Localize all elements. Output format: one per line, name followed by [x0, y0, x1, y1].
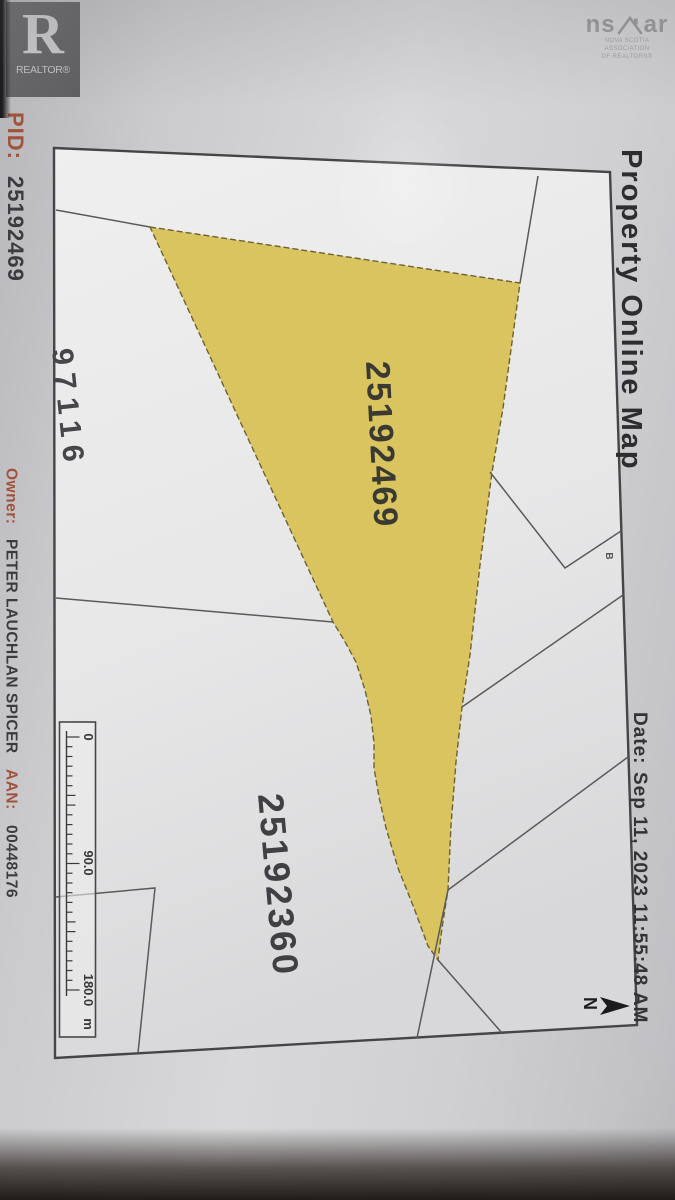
aan-label: AAN: [3, 769, 19, 810]
page-title-block: Property Online Map [616, 149, 645, 471]
pid-label: PID: [4, 112, 26, 160]
nsar-logo: ns ar NOVA SCOTIA ASSOCIATION OF REALTOR… [583, 12, 671, 61]
pid-margin-block: PID: 25192469 [4, 112, 26, 282]
realtor-logo: R REALTOR® [6, 2, 80, 97]
realtor-r-icon: R [22, 2, 64, 66]
date-value: Sep 11, 2023 11:55:48 AM [630, 772, 649, 1023]
date-label: Date: [630, 712, 649, 765]
page-title: Property Online Map [616, 149, 645, 471]
nsar-wordmark-ar: ar [644, 14, 669, 36]
parcel-label-25192469: 25192469 [360, 360, 403, 529]
nsar-wordmark: ns ar [586, 12, 669, 36]
pid-value: 25192469 [4, 176, 26, 282]
scale-start-label: 0 [81, 733, 96, 740]
nsar-wordmark-ns: ns [586, 14, 616, 36]
north-arrow-label: N [581, 997, 599, 1010]
photo-corner-shadow [0, 0, 11, 118]
aan-value: 00448176 [3, 825, 19, 898]
photographed-property-map-page: { "branding": { "realtor_symbol": "R", "… [0, 0, 675, 1200]
scale-end-label: 180.0 [81, 974, 96, 1007]
owner-margin-block: Owner: PETER LAUCHLAN SPICER AAN: 004481… [3, 468, 19, 898]
property-map-canvas: B 0 90.0 180.0 m [0, 0, 675, 1200]
owner-label: Owner: [3, 468, 19, 524]
nsar-house-icon [617, 12, 643, 36]
realtor-wordmark: REALTOR® [16, 64, 70, 76]
owner-value: PETER LAUCHLAN SPICER [3, 539, 19, 754]
scale-bar: 0 90.0 180.0 m [60, 722, 97, 1037]
date-block: Date: Sep 11, 2023 11:55:48 AM [630, 712, 649, 1023]
nsar-tagline-line2: OF REALTORS® [583, 54, 671, 62]
nsar-tagline: NOVA SCOTIA ASSOCIATION OF REALTORS® [583, 38, 671, 61]
scale-mid-label: 90.0 [81, 850, 96, 875]
nsar-tagline-line1: NOVA SCOTIA ASSOCIATION [583, 38, 671, 54]
corner-label: B [603, 552, 614, 559]
scale-unit-label: m [81, 1018, 96, 1030]
